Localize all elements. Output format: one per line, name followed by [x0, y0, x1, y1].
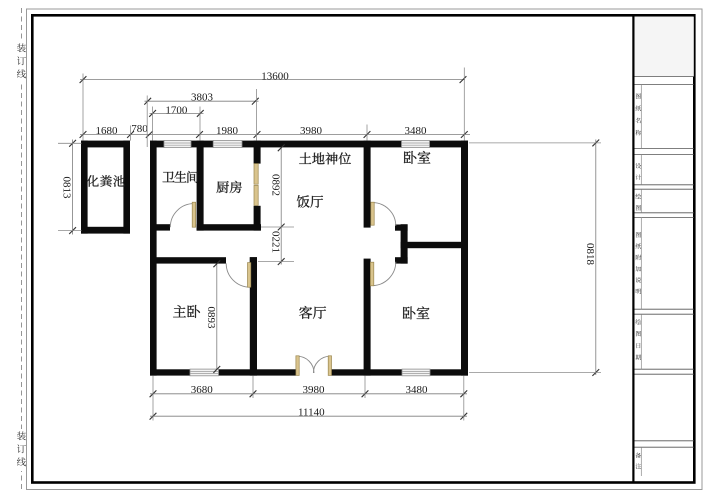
svg-text:1680: 1680: [96, 125, 119, 137]
svg-text:0893: 0893: [205, 307, 217, 330]
svg-text:0892: 0892: [269, 174, 281, 196]
svg-text:11140: 11140: [298, 407, 325, 419]
svg-text:0221: 0221: [269, 231, 281, 253]
svg-text:1980: 1980: [216, 125, 239, 137]
svg-text:3480: 3480: [406, 384, 429, 396]
svg-text:3480: 3480: [405, 125, 428, 137]
svg-text:780: 780: [131, 123, 148, 135]
svg-text:3980: 3980: [303, 384, 326, 396]
svg-text:0813: 0813: [61, 177, 73, 200]
svg-text:3680: 3680: [191, 384, 214, 396]
svg-text:3803: 3803: [191, 92, 214, 104]
svg-text:13600: 13600: [261, 70, 289, 82]
svg-text:0818: 0818: [584, 243, 596, 266]
svg-text:3980: 3980: [300, 125, 323, 137]
svg-text:1700: 1700: [165, 105, 188, 117]
